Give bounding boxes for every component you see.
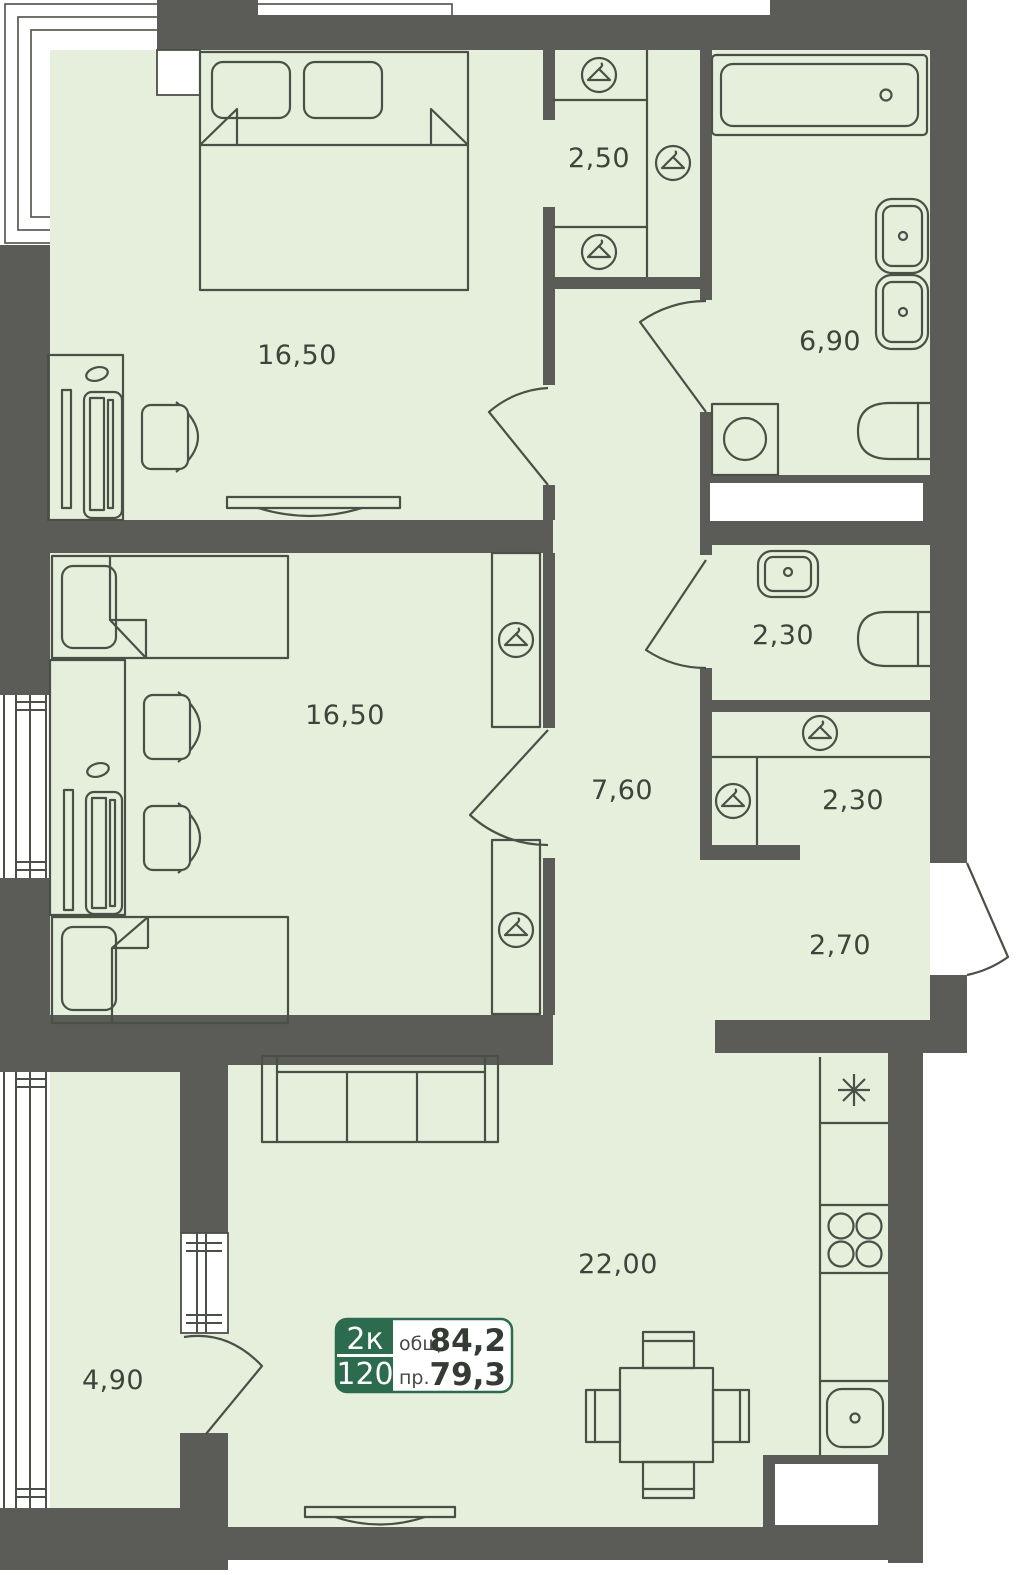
- room-balcony: 4,90: [82, 1365, 144, 1396]
- hanger-icon: [656, 146, 690, 180]
- hanger-icon: [716, 784, 750, 818]
- room-area-label: 6,90: [799, 326, 861, 357]
- room-area-label: 2,30: [752, 620, 814, 651]
- room-area-label: 2,50: [568, 143, 630, 174]
- window-bedroom-2: [0, 695, 50, 878]
- vent-shaft-bathroom: [710, 483, 923, 521]
- hanger-icon: [582, 58, 616, 92]
- hanger-icon: [499, 913, 533, 947]
- room-area-label: 16,50: [257, 340, 337, 371]
- room-area-label: 16,50: [305, 700, 385, 731]
- badge-unit-number: 120: [336, 1357, 393, 1392]
- badge-rooms-count: 2к: [346, 1322, 383, 1357]
- hanger-icon: [582, 235, 616, 269]
- area-badge: 2к 120 общ. 84,2 пр. 79,3: [336, 1319, 512, 1393]
- room-area-label: 22,00: [578, 1249, 658, 1280]
- floor-plan-page: 16,50 2,50 6,: [0, 0, 1029, 1575]
- room-corridor: 7,60: [591, 775, 653, 806]
- floor-plan: 16,50 2,50 6,: [0, 0, 1029, 1575]
- room-area-label: 4,90: [82, 1365, 144, 1396]
- room-area-label: 2,30: [822, 785, 884, 816]
- hanger-icon: [499, 623, 533, 657]
- hanger-icon: [803, 716, 837, 750]
- room-area-label: 7,60: [591, 775, 653, 806]
- balcony-door-niche: [157, 50, 200, 95]
- badge-reduced-label: пр.: [399, 1367, 430, 1389]
- vent-shaft-kitchen: [775, 1464, 878, 1525]
- badge-reduced-value: 79,3: [430, 1357, 507, 1393]
- room-area-label: 2,70: [809, 930, 871, 961]
- badge-total-value: 84,2: [430, 1323, 507, 1359]
- balcony-glazing-left: [0, 1072, 50, 1508]
